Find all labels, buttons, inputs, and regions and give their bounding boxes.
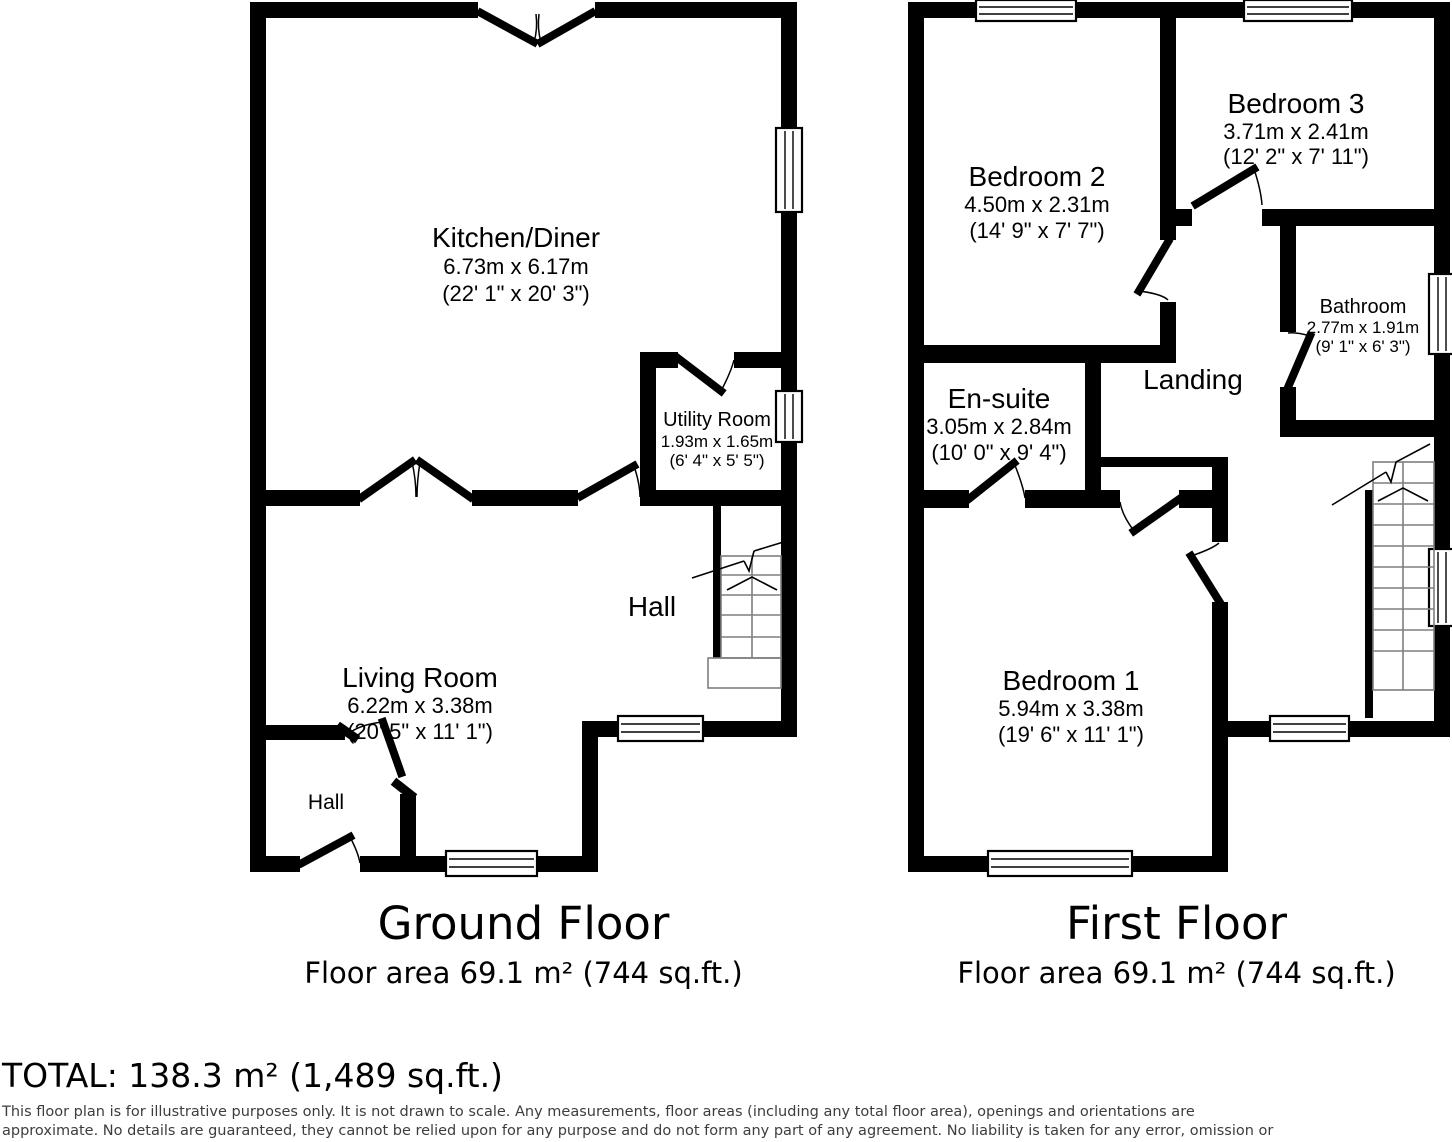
ground-floor-area: Floor area 69.1 m² (744 sq.ft.) [250, 956, 797, 990]
disclaimer-line-2: approximate. No details are guaranteed, … [2, 1122, 1273, 1141]
wall [250, 2, 478, 18]
wall [472, 490, 578, 506]
kitchen-living-double-door [362, 462, 470, 497]
room-label-bathroom-metric: 2.77m x 1.91m [1307, 318, 1419, 337]
room-label-utility-name: Utility Room [663, 409, 771, 431]
wall [360, 856, 450, 872]
wall [713, 506, 721, 658]
wall [1262, 209, 1450, 226]
room-label-utility-metric: 1.93m x 1.65m [661, 432, 773, 451]
room-label-kitchen-metric: 6.73m x 6.17m [443, 254, 589, 279]
kitchen-window [776, 128, 802, 212]
room-label-utility-imperial: (6' 4" x 5' 5") [669, 451, 764, 470]
wall [734, 352, 781, 368]
french-doors [481, 13, 592, 42]
bedroom2-window [976, 0, 1076, 21]
wall [1228, 721, 1274, 737]
landing-window [1270, 716, 1349, 741]
wall [1212, 457, 1228, 542]
bedroom1-inner-door [1120, 500, 1178, 531]
wall [908, 856, 992, 872]
wall [1093, 457, 1228, 467]
room-label-hall-small: Hall [308, 791, 344, 814]
wall [699, 721, 797, 737]
bedroom3-window [1244, 0, 1352, 21]
room-label-bedroom2-metric: 4.50m x 2.31m [964, 192, 1110, 217]
wall [1434, 354, 1450, 549]
front-door [302, 837, 360, 863]
room-label-landing: Landing [1143, 364, 1243, 395]
room-label-kitchen-name: Kitchen/Diner [432, 222, 600, 253]
wall [640, 352, 678, 368]
wall [400, 794, 416, 856]
ground-floor-plan: Kitchen/Diner 6.73m x 6.17m (22' 1" x 20… [250, 2, 802, 876]
total-area-label: TOTAL: 138.3 m² (1,489 sq.ft.) [2, 1056, 503, 1095]
disclaimer-line-1: This floor plan is for illustrative purp… [2, 1103, 1273, 1122]
first-floor-plan: Bedroom 2 4.50m x 2.31m (14' 9" x 7' 7")… [908, 0, 1452, 876]
wall [908, 2, 924, 872]
first-floor-stairs [1332, 444, 1434, 690]
wall [1072, 2, 1248, 18]
wall [1160, 302, 1176, 345]
room-label-bedroom1-imperial: (19' 6" x 11' 1") [998, 722, 1144, 747]
wall [640, 490, 797, 506]
room-label-hall: Hall [628, 591, 676, 622]
kitchen-hall-door [581, 466, 640, 497]
wall [1025, 490, 1120, 508]
wall [1179, 490, 1212, 508]
first-floor-title: First Floor [903, 897, 1450, 950]
ground-floor-title: Ground Floor [250, 897, 797, 950]
wall [781, 212, 797, 395]
wall [266, 490, 360, 506]
bedroom3-door [1196, 169, 1262, 205]
room-label-ensuite-name: En-suite [948, 383, 1051, 414]
disclaimer: This floor plan is for illustrative purp… [2, 1103, 1273, 1142]
room-label-living-imperial: (20' 5" x 11' 1") [347, 719, 493, 744]
utility-door [679, 359, 734, 391]
wall [1176, 209, 1192, 226]
room-label-bedroom2-imperial: (14' 9" x 7' 7") [969, 218, 1104, 243]
wall [924, 490, 969, 508]
ground-floor-stairs [692, 540, 790, 688]
room-label-bedroom1-metric: 5.94m x 3.38m [998, 696, 1144, 721]
wall [781, 442, 797, 737]
wall [1280, 226, 1296, 332]
hall-window [618, 716, 703, 741]
bathroom-door [1288, 333, 1310, 385]
room-label-bedroom2-name: Bedroom 2 [969, 161, 1106, 192]
bedroom1-window [988, 851, 1132, 876]
room-label-living-metric: 6.22m x 3.38m [347, 693, 493, 718]
wall [924, 345, 1176, 363]
bedroom2-door [1139, 242, 1168, 300]
first-floor-area: Floor area 69.1 m² (744 sq.ft.) [903, 956, 1450, 990]
floor-plan-page: Kitchen/Diner 6.73m x 6.17m (22' 1" x 20… [0, 0, 1452, 1142]
room-label-ensuite-imperial: (10' 0" x 9' 4") [931, 440, 1066, 465]
utility-window [776, 391, 802, 442]
wall [595, 2, 797, 18]
wall [250, 2, 266, 872]
room-label-ensuite-metric: 3.05m x 2.84m [926, 414, 1072, 439]
wall [1280, 387, 1296, 420]
stairs-up-arrow [692, 540, 790, 590]
room-label-living-name: Living Room [342, 662, 498, 693]
bathroom-window [1429, 274, 1452, 354]
room-label-bathroom-imperial: (9' 1" x 6' 3") [1315, 337, 1410, 356]
wall [1212, 602, 1228, 872]
room-label-kitchen-imperial: (22' 1" x 20' 3") [442, 281, 590, 306]
wall [1280, 420, 1450, 437]
wall [1434, 626, 1450, 737]
room-label-bedroom1-name: Bedroom 1 [1003, 665, 1140, 696]
wall [266, 725, 345, 740]
stairs-up-arrow [1332, 444, 1430, 505]
en-suite-door [970, 463, 1025, 498]
wall [640, 352, 656, 506]
room-label-bedroom3-metric: 3.71m x 2.41m [1223, 119, 1369, 144]
living-room-window [446, 851, 537, 876]
bedroom1-door [1191, 543, 1219, 601]
wall [1434, 2, 1450, 274]
wall [1345, 721, 1450, 737]
wall [1160, 18, 1176, 240]
wall [250, 856, 300, 872]
wall [781, 2, 797, 132]
room-label-bedroom3-name: Bedroom 3 [1228, 88, 1365, 119]
room-label-bedroom3-imperial: (12' 2" x 7' 11") [1223, 144, 1369, 169]
wall [1085, 345, 1101, 490]
wall [582, 721, 598, 872]
wall [1365, 490, 1373, 718]
room-label-bathroom-name: Bathroom [1320, 296, 1407, 318]
